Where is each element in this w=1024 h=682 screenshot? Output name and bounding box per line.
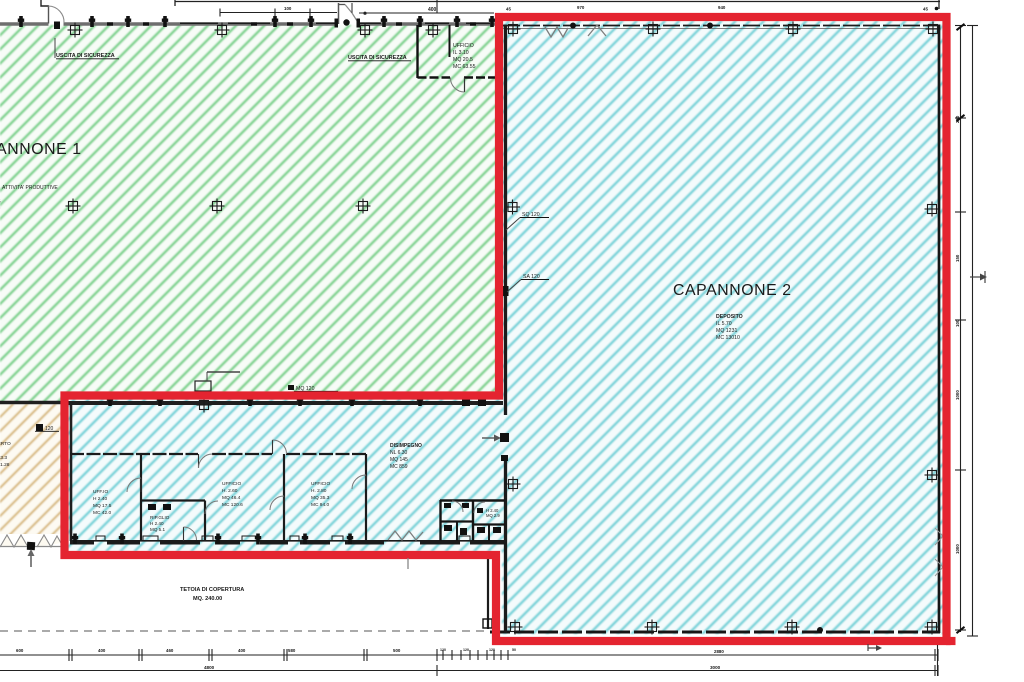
svg-text:MQ 5.1: MQ 5.1	[150, 527, 166, 532]
svg-text:250: 250	[955, 115, 960, 123]
svg-text:MC 120.6: MC 120.6	[222, 502, 243, 508]
svg-text:580: 580	[288, 648, 296, 653]
svg-text:DISIMPEGNO: DISIMPEGNO	[390, 443, 422, 449]
svg-text:120: 120	[440, 648, 446, 652]
svg-text:100: 100	[955, 319, 960, 327]
svg-text:45: 45	[923, 7, 928, 12]
svg-text:ATTIVITA' PRODUTTIVE: ATTIVITA' PRODUTTIVE	[2, 185, 58, 191]
svg-text:TETOIA DI COPERTURA: TETOIA DI COPERTURA	[180, 587, 244, 593]
svg-text:MC 94.0: MC 94.0	[311, 502, 329, 508]
svg-text:400: 400	[428, 7, 437, 13]
svg-text:MQ 35.3: MQ 35.3	[311, 495, 330, 501]
svg-text:940: 940	[718, 5, 726, 10]
svg-text:NL 6.30: NL 6.30	[390, 450, 408, 456]
svg-text:3000: 3000	[710, 665, 721, 670]
svg-text:120: 120	[489, 648, 495, 652]
svg-text:970: 970	[577, 5, 585, 10]
svg-text:460: 460	[166, 648, 174, 653]
svg-text:UFFICIO: UFFICIO	[311, 481, 330, 487]
svg-text:H 2.40: H 2.40	[150, 521, 164, 526]
svg-text:UFF.IO: UFF.IO	[93, 489, 108, 495]
svg-text:H 2.40: H 2.40	[93, 496, 107, 502]
svg-text:MC 13010: MC 13010	[716, 335, 740, 341]
svg-text:IL 5.70: IL 5.70	[716, 321, 732, 327]
svg-text:MQ 145: MQ 145	[390, 457, 408, 463]
svg-text:MQ 20.5: MQ 20.5	[453, 57, 473, 63]
svg-text:120: 120	[463, 648, 469, 652]
svg-text:2880: 2880	[714, 649, 724, 654]
svg-text:DEPOSITO: DEPOSITO	[716, 314, 743, 320]
svg-text:MQ 143.3: MQ 143.3	[0, 455, 7, 461]
svg-text:H. 2.60: H. 2.60	[222, 488, 238, 494]
svg-text:50: 50	[512, 648, 516, 652]
svg-text:MC 541.28: MC 541.28	[0, 462, 10, 468]
svg-text:MQ 1231: MQ 1231	[716, 328, 737, 334]
svg-text:USCITA DI SICUREZZA: USCITA DI SICUREZZA	[348, 55, 407, 61]
svg-text:H. 2.80: H. 2.80	[311, 488, 327, 494]
svg-text:100: 100	[284, 6, 292, 11]
svg-text:4800: 4800	[204, 665, 215, 670]
svg-text:MC 63.55: MC 63.55	[453, 64, 476, 70]
svg-text:CAPANNONE 2: CAPANNONE 2	[673, 282, 792, 299]
svg-text:SCOPERTO: SCOPERTO	[0, 441, 11, 447]
svg-text:1000: 1000	[955, 544, 960, 554]
svg-text:USCITA DI SICUREZZA: USCITA DI SICUREZZA	[56, 53, 115, 59]
svg-text:400: 400	[238, 648, 246, 653]
svg-text:MQ. 240.00: MQ. 240.00	[193, 596, 222, 602]
svg-text:600: 600	[16, 648, 24, 653]
svg-text:MQ 2.9: MQ 2.9	[486, 513, 500, 518]
svg-text:IL 3.10: IL 3.10	[453, 50, 469, 56]
svg-text:RIP.GLIO: RIP.GLIO	[150, 515, 170, 520]
svg-text:45: 45	[506, 7, 511, 12]
svg-text:MC 42.0: MC 42.0	[93, 510, 111, 516]
svg-text:150: 150	[955, 254, 960, 262]
svg-text:1000: 1000	[955, 390, 960, 400]
svg-text:500: 500	[393, 648, 401, 653]
svg-text:CAPANNONE 1: CAPANNONE 1	[0, 141, 82, 158]
svg-text:UFFICIO: UFFICIO	[453, 43, 474, 49]
svg-text:UFFICIO: UFFICIO	[222, 481, 241, 487]
svg-text:MQ 46.4: MQ 46.4	[222, 495, 241, 501]
svg-text:MC 859: MC 859	[390, 464, 408, 470]
svg-text:MQ 17.5: MQ 17.5	[93, 503, 112, 509]
svg-text:400: 400	[98, 648, 106, 653]
